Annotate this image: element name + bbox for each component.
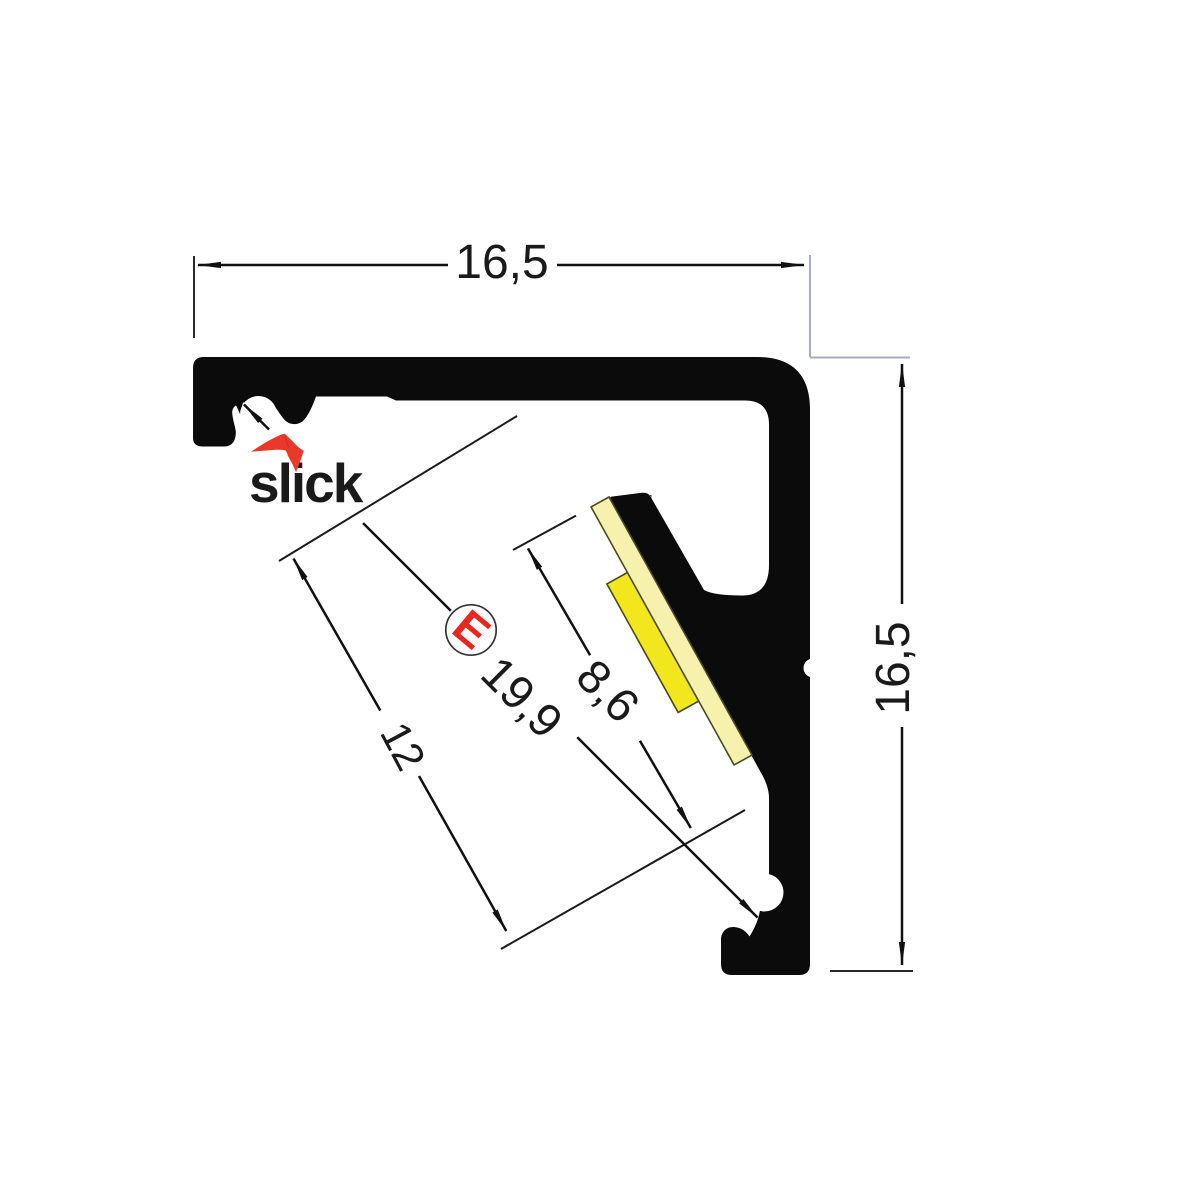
svg-text:16,5: 16,5 [455,236,548,289]
svg-text:slick: slick [249,452,364,514]
svg-text:16,5: 16,5 [867,621,920,714]
